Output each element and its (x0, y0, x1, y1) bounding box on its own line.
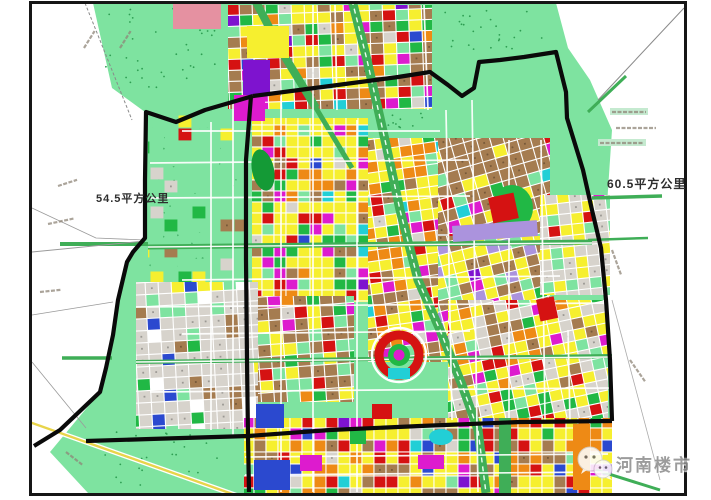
watermark: 河南楼市 (575, 445, 692, 481)
map-content (18, 0, 686, 500)
watermark-text: 河南楼市 (616, 451, 692, 476)
wechat-bubbles-icon (575, 445, 615, 481)
east-area-label: 60.5平方公里 (607, 175, 686, 192)
map-sheet: 54.5平方公里 60.5平方公里 河南楼市 (0, 0, 711, 500)
city-plan-map (0, 0, 711, 500)
west-area-label: 54.5平方公里 (96, 190, 169, 206)
